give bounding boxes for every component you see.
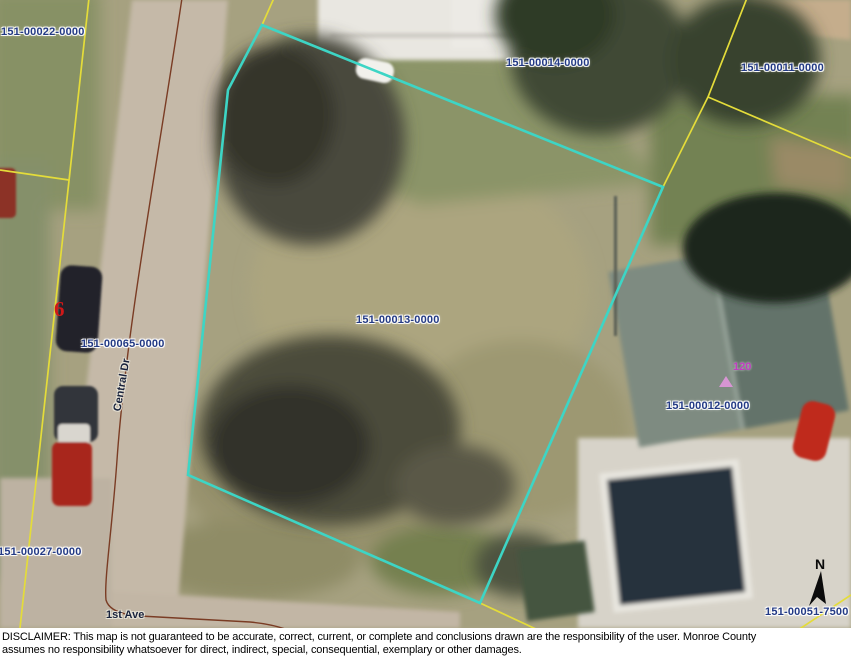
parcel-label-151-00013-0000: 151-00013-0000 (356, 314, 440, 326)
address-point-marker-icon (719, 376, 733, 387)
gis-map-export: 151-00022-0000 151-00014-0000 151-00011-… (0, 0, 851, 664)
disclaimer-line1: DISCLAIMER: This map is not guaranteed t… (2, 631, 851, 644)
parcel-label-151-00011-0000: 151-00011-0000 (741, 62, 824, 74)
parcel-label-151-00012-0000: 151-00012-0000 (666, 400, 750, 412)
parcel-label-151-00022-0000: 151-00022-0000 (1, 26, 85, 38)
map-canvas[interactable]: 151-00022-0000 151-00014-0000 151-00011-… (0, 0, 851, 628)
north-arrow-icon (806, 569, 832, 607)
parcel-label-151-00014-0000: 151-00014-0000 (506, 57, 590, 69)
street-label-1st-ave: 1st Ave (106, 609, 144, 621)
disclaimer: DISCLAIMER: This map is not guaranteed t… (0, 628, 851, 664)
lot-number-label: 6 (54, 297, 65, 322)
address-point-label: 120 (733, 361, 751, 373)
parcel-label-151-00027-0000: 151-00027-0000 (0, 546, 82, 558)
disclaimer-line2: assumes no responsibility whatsoever for… (2, 644, 851, 657)
north-arrow: N (800, 556, 840, 611)
road-centerline (106, 0, 288, 628)
